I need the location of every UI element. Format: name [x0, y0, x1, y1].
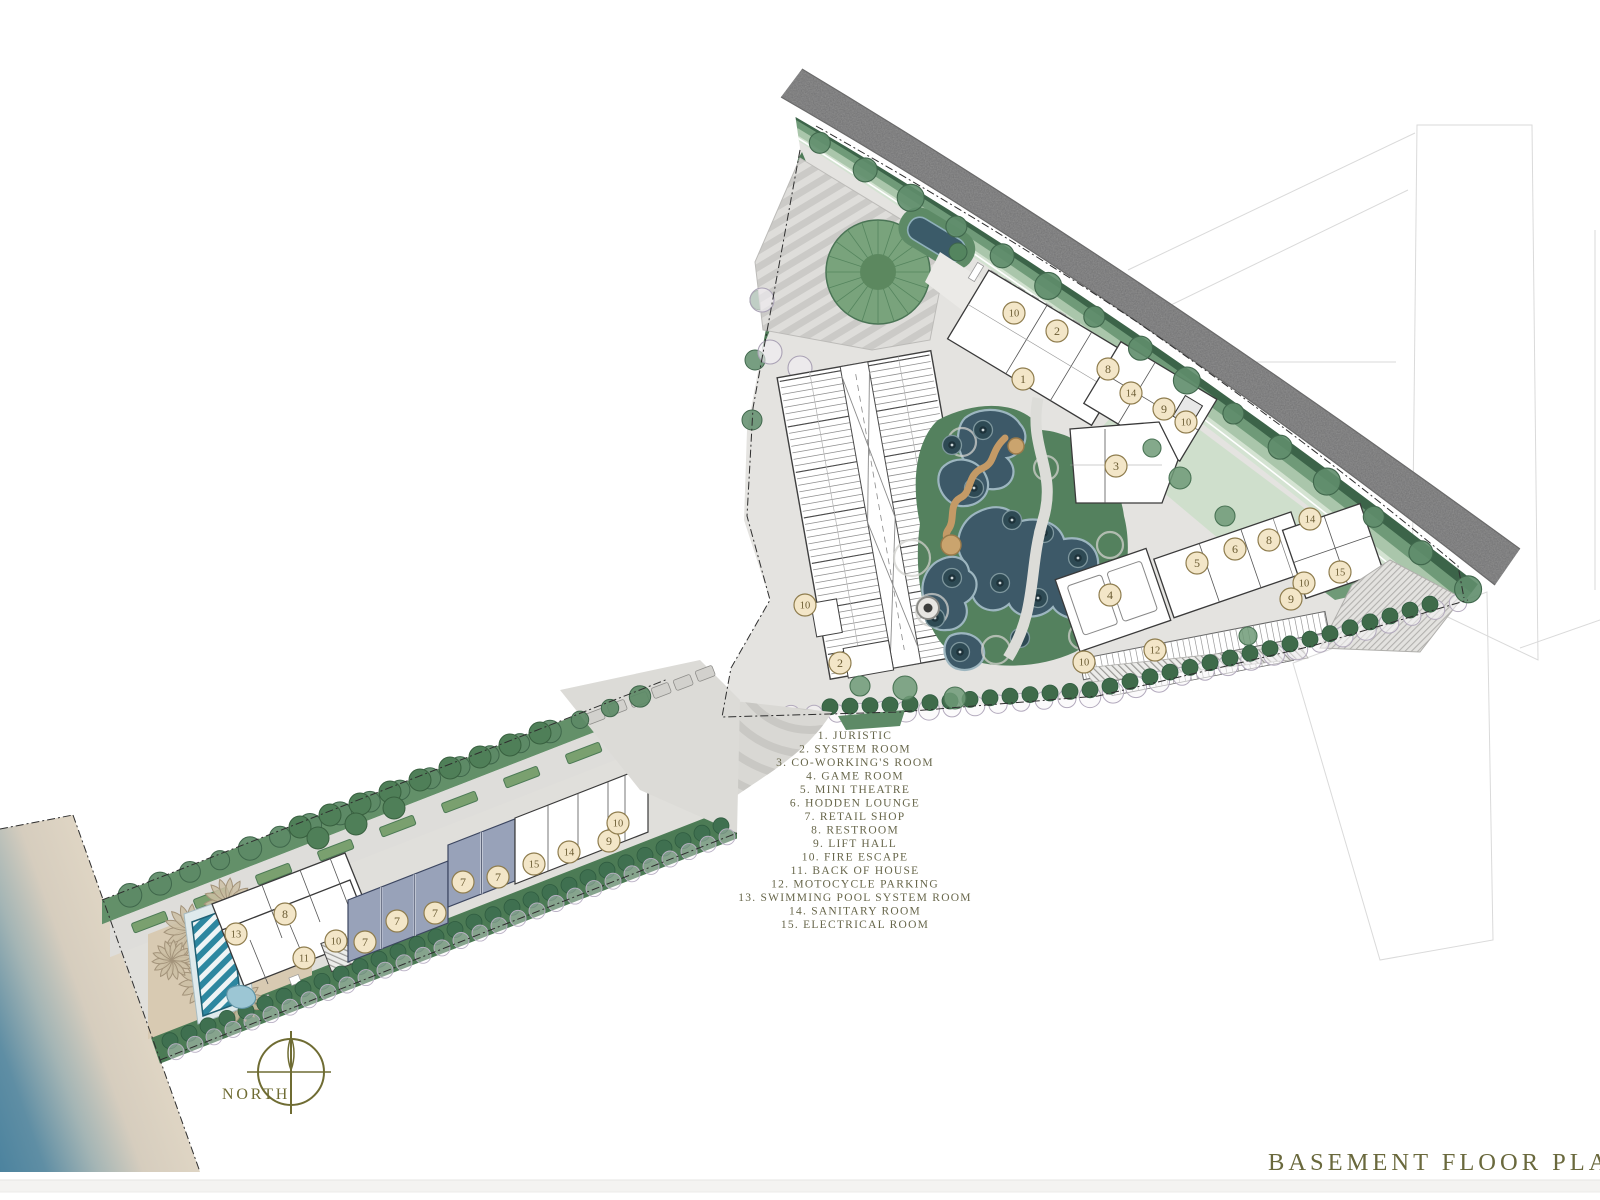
- svg-text:13. SWIMMING POOL SYSTEM ROOM: 13. SWIMMING POOL SYSTEM ROOM: [738, 892, 972, 904]
- svg-text:2. SYSTEM ROOM: 2. SYSTEM ROOM: [799, 744, 911, 756]
- svg-text:10: 10: [331, 937, 342, 948]
- svg-text:5. MINI THEATRE: 5. MINI THEATRE: [800, 784, 910, 796]
- svg-text:8: 8: [282, 907, 288, 921]
- svg-text:10: 10: [800, 601, 811, 612]
- svg-text:10: 10: [1299, 579, 1310, 590]
- svg-text:9: 9: [1161, 402, 1167, 416]
- svg-text:BASEMENT FLOOR PLAN: BASEMENT FLOOR PLAN: [1268, 1149, 1600, 1176]
- svg-text:9: 9: [1288, 592, 1294, 606]
- svg-text:10: 10: [1009, 309, 1020, 320]
- svg-text:6: 6: [1232, 542, 1238, 556]
- svg-text:11. BACK OF HOUSE: 11. BACK OF HOUSE: [791, 865, 920, 877]
- svg-text:15: 15: [1335, 568, 1346, 579]
- svg-text:5: 5: [1194, 556, 1200, 570]
- svg-text:9: 9: [606, 834, 612, 848]
- svg-text:8. RESTROOM: 8. RESTROOM: [811, 825, 899, 837]
- svg-text:6. HODDEN LOUNGE: 6. HODDEN LOUNGE: [790, 798, 920, 810]
- svg-text:4. GAME ROOM: 4. GAME ROOM: [806, 771, 904, 783]
- svg-text:14. SANITARY ROOM: 14. SANITARY ROOM: [789, 906, 921, 918]
- svg-text:11: 11: [299, 954, 309, 965]
- svg-text:10: 10: [1079, 658, 1090, 669]
- svg-text:15: 15: [529, 860, 540, 871]
- svg-text:3. CO-WORKING'S ROOM: 3. CO-WORKING'S ROOM: [776, 757, 934, 769]
- svg-text:2: 2: [837, 656, 843, 670]
- svg-text:7: 7: [394, 914, 400, 928]
- svg-text:14: 14: [1305, 515, 1316, 526]
- svg-text:1. JURISTIC: 1. JURISTIC: [818, 730, 892, 742]
- svg-text:7: 7: [460, 875, 466, 889]
- svg-text:13: 13: [231, 930, 242, 941]
- svg-text:2: 2: [1054, 324, 1060, 338]
- svg-text:9. LIFT HALL: 9. LIFT HALL: [813, 838, 897, 850]
- svg-text:7: 7: [362, 935, 368, 949]
- svg-text:7: 7: [432, 906, 438, 920]
- svg-text:12. MOTOCYCLE PARKING: 12. MOTOCYCLE PARKING: [771, 879, 939, 891]
- svg-text:15. ELECTRICAL ROOM: 15. ELECTRICAL ROOM: [781, 919, 929, 931]
- svg-text:14: 14: [564, 848, 575, 859]
- svg-text:3: 3: [1113, 459, 1119, 473]
- svg-text:10: 10: [1181, 418, 1192, 429]
- svg-text:12: 12: [1150, 646, 1161, 657]
- svg-text:NORTH: NORTH: [222, 1086, 290, 1103]
- svg-text:4: 4: [1107, 588, 1113, 602]
- svg-text:10: 10: [613, 819, 624, 830]
- svg-text:7: 7: [495, 870, 501, 884]
- svg-text:10. FIRE ESCAPE: 10. FIRE ESCAPE: [802, 852, 909, 864]
- svg-text:8: 8: [1105, 362, 1111, 376]
- svg-text:1: 1: [1020, 372, 1026, 386]
- svg-text:14: 14: [1126, 389, 1137, 400]
- svg-text:7. RETAIL SHOP: 7. RETAIL SHOP: [805, 811, 906, 823]
- svg-text:8: 8: [1266, 533, 1272, 547]
